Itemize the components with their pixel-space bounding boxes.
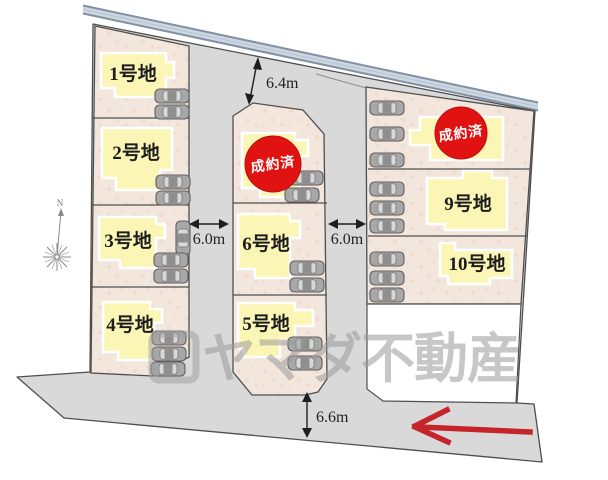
watermark-label: ヤマダ不動産	[202, 329, 520, 389]
car-icon	[370, 288, 404, 302]
car-icon	[370, 101, 404, 115]
lot-3-label: 3号地	[104, 229, 152, 252]
car-icon	[154, 253, 188, 267]
site-plan-drawing: 1号地 2号地 3号地 4号地 5号地 6号地 9号地 10号地	[0, 0, 608, 480]
watermark: ヤマダ不動産	[152, 329, 520, 389]
car-icon	[370, 219, 404, 233]
car-icon	[176, 221, 190, 255]
dimension-label-east-6-0m: 6.0m	[331, 231, 364, 248]
lot-1-label: 1号地	[109, 62, 157, 85]
lot-9-label: 9号地	[444, 192, 492, 215]
car-icon	[370, 201, 404, 215]
car-icon	[155, 105, 189, 119]
site-plan-canvas: 1号地 2号地 3号地 4号地 5号地 6号地 9号地 10号地	[0, 0, 608, 480]
car-icon	[370, 271, 404, 285]
lot-4-label: 4号地	[106, 313, 154, 336]
compass-star	[43, 243, 71, 271]
dimension-label-west-6-0m: 6.0m	[193, 231, 226, 248]
lot-6-label: 6号地	[242, 232, 290, 255]
sold-badge-lot7: 成約済	[245, 136, 301, 192]
car-icon	[156, 175, 190, 189]
car-icon	[152, 347, 186, 361]
lot-10-label: 10号地	[448, 252, 505, 275]
compass-north-label: N	[57, 198, 64, 208]
car-icon	[285, 188, 319, 202]
car-icon	[290, 261, 324, 275]
car-icon	[156, 191, 190, 205]
compass: N	[43, 198, 71, 271]
car-icon	[370, 182, 404, 196]
car-icon	[370, 127, 404, 141]
car-icon	[370, 252, 404, 266]
car-icon	[290, 278, 324, 292]
car-icon	[151, 362, 185, 376]
sold-badge-lot8: 成約済	[435, 107, 487, 159]
dimension-west-road: 6.0m	[189, 219, 229, 248]
car-icon	[370, 153, 404, 167]
dimension-label-6-4m: 6.4m	[266, 75, 299, 92]
car-icon	[154, 269, 188, 283]
car-icon	[155, 89, 189, 103]
lot-2-label: 2号地	[112, 141, 160, 164]
dimension-label-6-6m: 6.6m	[316, 409, 349, 426]
dimension-east-road: 6.0m	[328, 219, 366, 248]
